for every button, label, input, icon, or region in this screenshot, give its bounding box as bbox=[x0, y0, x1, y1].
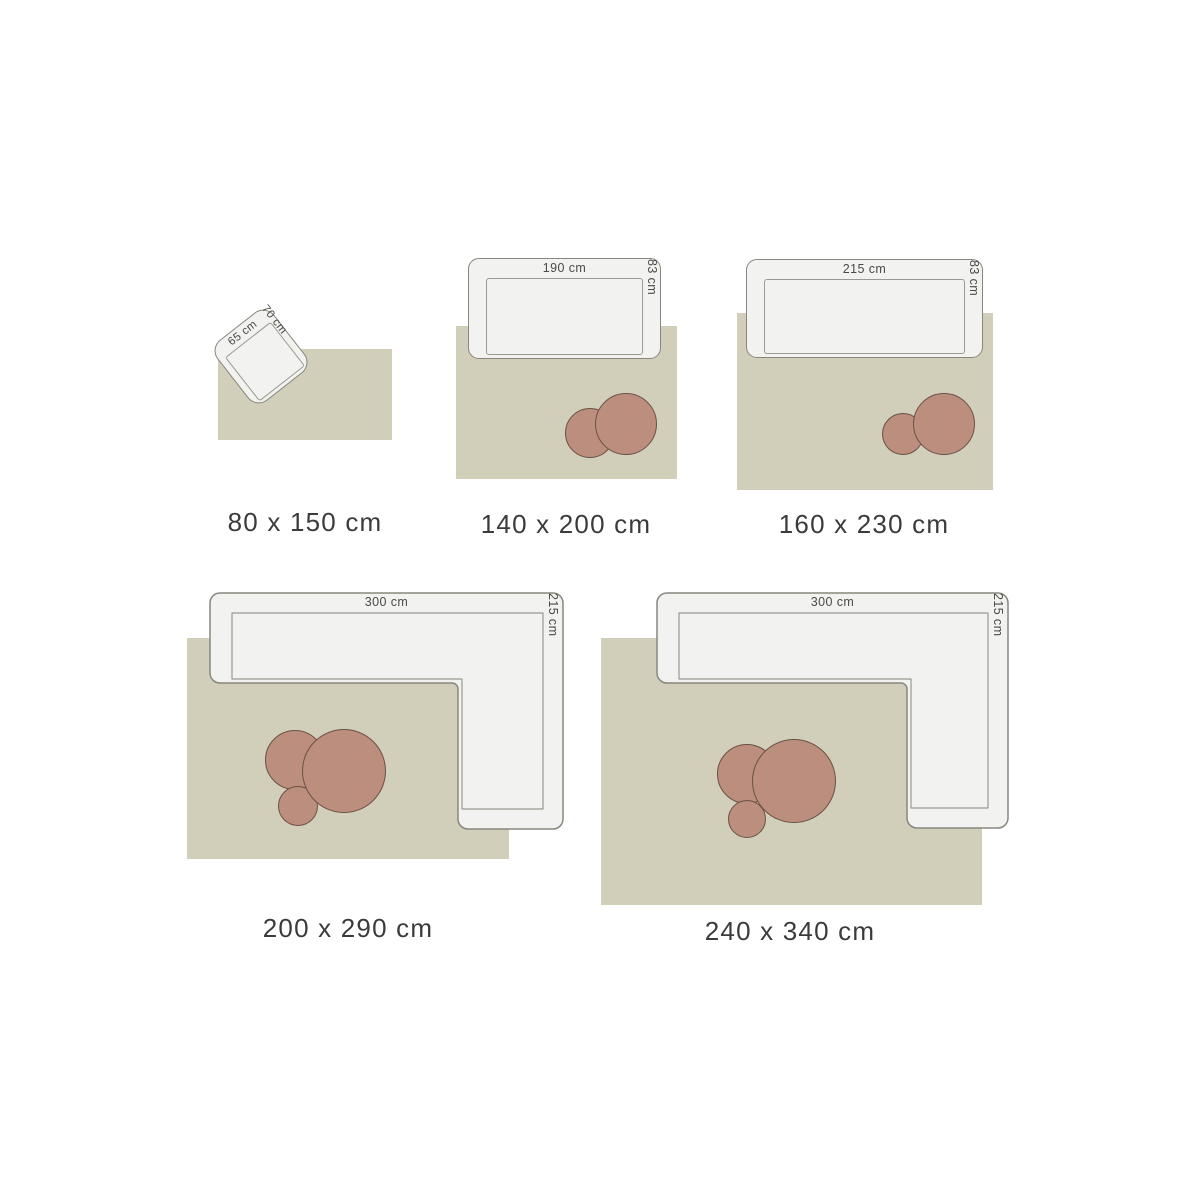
sofa-width-label: 300 cm bbox=[210, 596, 563, 609]
rug-size-label: 240 x 340 cm bbox=[640, 916, 940, 946]
sofa-depth-label: 83 cm bbox=[646, 259, 659, 358]
sofa-width-label: 300 cm bbox=[657, 596, 1008, 609]
corner-sofa-shape bbox=[657, 593, 1008, 828]
sofa-seat-outline bbox=[486, 278, 643, 355]
rug-size-label: 200 x 290 cm bbox=[198, 913, 498, 943]
sofa-depth-label: 215 cm bbox=[547, 593, 560, 829]
sofa: 190 cm 83 cm bbox=[468, 258, 661, 359]
rug-size-label: 160 x 230 cm bbox=[714, 509, 1014, 539]
corner-sofa-shape bbox=[210, 593, 563, 829]
sofa-depth-label: 83 cm bbox=[968, 260, 981, 357]
corner-sofa: 300 cm 215 cm bbox=[210, 593, 563, 829]
sofa: 215 cm 83 cm bbox=[746, 259, 983, 358]
rug-size-label: 140 x 200 cm bbox=[416, 509, 716, 539]
sofa-width-label: 190 cm bbox=[469, 262, 660, 275]
sofa-depth-label: 215 cm bbox=[992, 593, 1005, 828]
rug-size-guide: 65 cm 70 cm 80 x 150 cm 190 cm 83 cm 140… bbox=[0, 0, 1200, 1200]
sofa-width-label: 215 cm bbox=[747, 263, 982, 276]
rug-size-label: 80 x 150 cm bbox=[155, 507, 455, 537]
corner-sofa: 300 cm 215 cm bbox=[657, 593, 1008, 828]
sofa-seat-outline bbox=[764, 279, 965, 354]
coffee-table-large bbox=[595, 393, 657, 455]
coffee-table-large bbox=[913, 393, 975, 455]
